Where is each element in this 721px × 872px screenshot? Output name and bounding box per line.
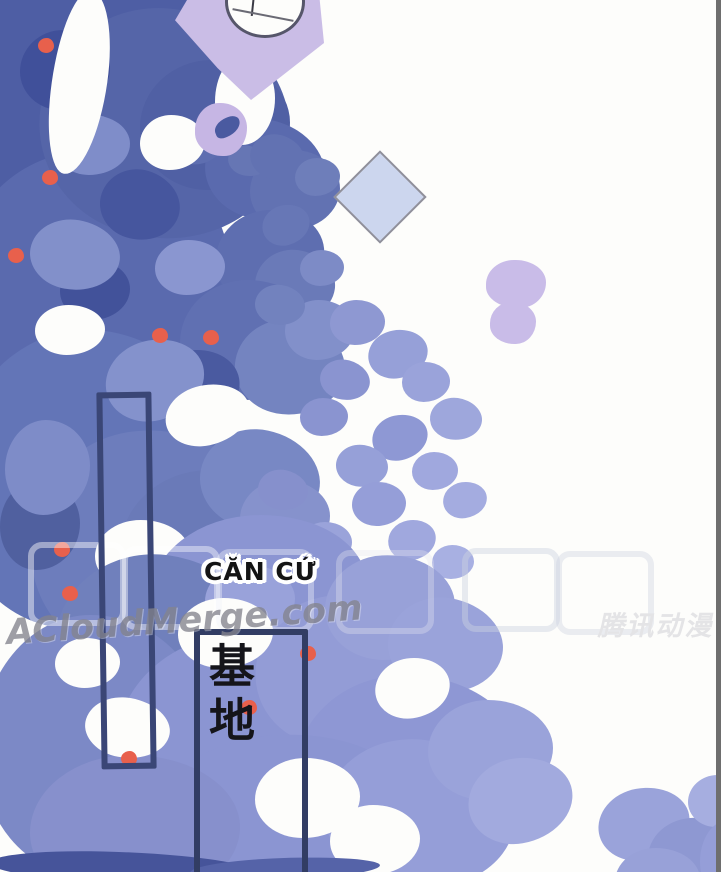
flower-blossom [42,170,58,185]
sign-text-vertical: 基地 [206,642,252,750]
set-square-shape [172,0,324,100]
screen-right-border [716,0,721,872]
location-caption: CĂN CỨ [204,557,317,586]
lavender-blob [486,260,546,308]
foliage-blob [402,362,450,402]
flower-blossom [203,330,219,345]
foliage-blob [427,395,484,444]
foliage-blob [300,398,348,436]
foliage-blob [352,482,406,526]
flower-blossom [152,328,168,343]
watermark-right-text: 腾讯动漫 [596,604,720,643]
diamond-shape [333,150,426,243]
foliage-blob [412,452,458,490]
lavender-blob [490,302,536,344]
foliage-blob [300,250,344,286]
tall-frame-rectangle [96,392,156,770]
flower-blossom [8,248,24,263]
comic-panel: 基地 CĂN CỨ ACloudMerge.com 腾讯动漫 [0,0,721,872]
flower-blossom [38,38,54,53]
ghost-watermark-glyph [462,548,560,632]
